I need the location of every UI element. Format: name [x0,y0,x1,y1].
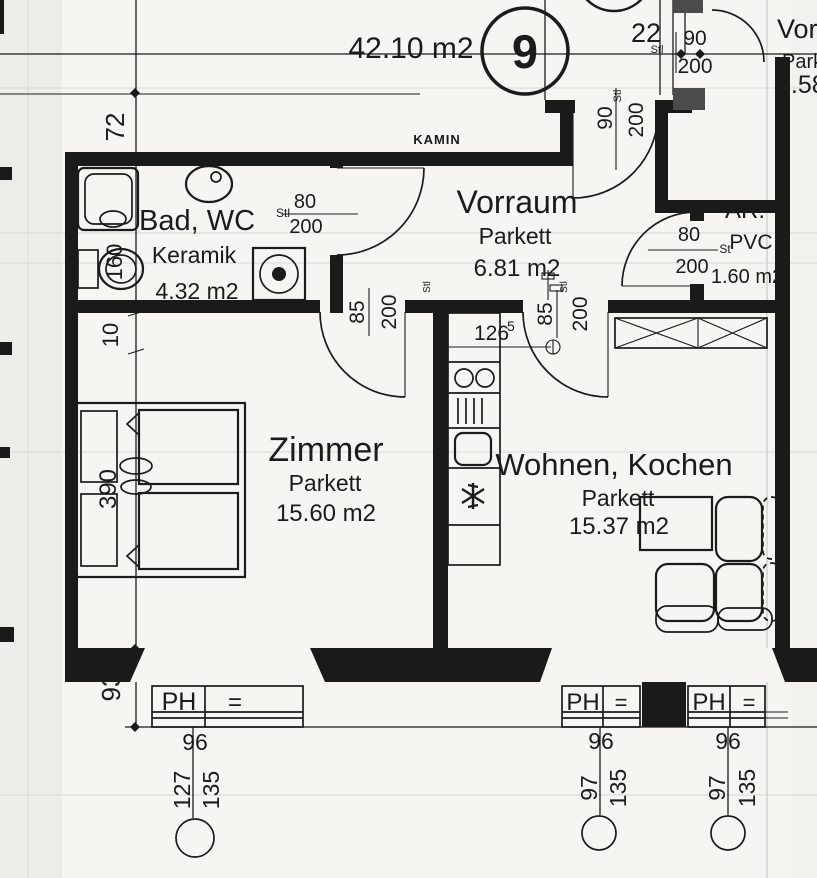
floorplan-svg: 42.10 m2 9 22 Stl 90 200 KAMIN Vorra Par… [0,0,817,878]
door-entrance-width: 90 [594,106,617,129]
window-pier [642,682,686,727]
window1-axis-a: 127 [169,771,195,809]
door-arc-bad [337,168,424,255]
axis-circle-w1 [176,819,214,857]
dim-72: 72 [100,113,130,142]
wall-mid-right [608,300,775,313]
neighbor-room-area: 7.58 [777,71,817,99]
door-ar-width: 80 [678,224,700,246]
door-entrance-frame: Stl [612,90,624,103]
door-entrance-height: 200 [625,102,648,137]
unit-number: 9 [512,25,538,78]
scan-right-margin [792,0,817,878]
window3-axis-a: 97 [704,775,730,801]
door-ar-height: 200 [675,256,708,278]
sink-drain [211,172,221,182]
door-bad-width: 80 [294,191,316,213]
dim-10: 10 [98,323,123,347]
neighbor-door-width: 90 [683,27,706,50]
room-zimmer-name: Zimmer [268,431,383,469]
wall-bad-right-upper [330,152,343,168]
bed-mattress-top [139,410,238,484]
room-vorraum-area: 6.81 m2 [474,255,561,282]
room-wohnen-floor: Parkett [582,485,655,511]
room-ar-floor: PVC [729,231,772,254]
door-frame-label-top: Stl [651,44,664,56]
wall-stub-left1 [0,167,12,180]
axis-circle-w2 [582,816,616,850]
bed-mattress-bottom [139,493,238,569]
dim-390: 390 [95,469,122,509]
door-zimmer-width: 85 [346,300,369,323]
toilet-tank [78,250,98,288]
window-opening-zimmer [130,648,325,682]
door-bad-height: 200 [289,216,322,238]
room-wohnen-area: 15.37 m2 [569,513,669,540]
jamb-neighbor-bottom [673,88,705,110]
dim-160: 160 [102,244,127,281]
door-wohnen-height: 200 [569,296,592,331]
room-bad-name: Bad, WC [139,205,255,237]
wall-bottom-fragment [790,648,817,682]
wardrobe-box [615,318,767,348]
jamb-neighbor-top [673,0,703,13]
corner-sofa [656,497,780,632]
window3-width: 96 [715,728,741,754]
diamond-72-top [130,88,140,98]
axis-circle-w3 [711,816,745,850]
dim-126: 126 [474,322,509,345]
neighbor-circle-fragment [576,0,652,11]
wall-zimmer-wohnen [433,313,448,648]
kamin-label: KAMIN [413,132,461,147]
room-vorraum-floor: Parkett [479,223,552,249]
window1-axis-b: 135 [198,771,224,809]
wall-stub-left2 [0,342,12,355]
dimension-diamonds [130,49,705,732]
wall-bad-right-lower [330,255,343,313]
wall-top [65,152,573,166]
diamond-93-bottom [130,722,140,732]
wardrobe [615,318,767,348]
floorplan-scan: 42.10 m2 9 22 Stl 90 200 KAMIN Vorra Par… [0,0,817,878]
window3-eq-label: = [743,690,756,715]
room-wohnen-name: Wohnen, Kochen [495,447,732,482]
bed-blanket-fold-bottom [127,545,139,567]
fridge-snowflake-icon [462,483,484,509]
neighbor-door-height: 200 [677,55,712,78]
window1-ph-label: PH [162,688,197,716]
wall-ar-jamb-top [690,213,704,221]
room-ar-name: AR. [725,197,765,224]
neighbor-room-floor: Parke [782,51,817,73]
wall-entry-left [545,100,575,113]
wall-mid-center [405,300,523,313]
washing-machine-knob [272,267,286,281]
sofa-seat1 [716,497,762,561]
room-zimmer-floor: Parkett [289,470,362,496]
neighbor-room-name: Vorra [777,14,817,44]
axis-markers-bottom [176,727,745,857]
sofa-seat2 [716,564,762,621]
wall-outer-right [775,57,790,648]
dim-126-sup: 5 [507,318,515,334]
door-ar-frame: St [719,242,731,256]
window2-width: 96 [588,728,614,754]
window2-eq-label: = [615,690,628,715]
sofa-front-edge2 [718,608,772,630]
kitchen-unit [448,313,500,565]
window1-eq-label: = [228,689,242,716]
wall-stub-left3 [0,447,10,458]
door-zimmer-frame: Stl [422,281,433,293]
dim-93: 93 [96,673,126,702]
door-bad-frame: Stl [276,206,290,220]
window3-ph-label: PH [692,689,725,716]
room-zimmer-area: 15.60 m2 [276,500,376,527]
total-area-label: 42.10 m2 [348,32,473,65]
scan-edge-fragment [0,0,4,34]
window2-axis-b: 135 [605,769,631,807]
window3-axis-b: 135 [734,769,760,807]
door-zimmer-height: 200 [378,294,401,329]
door-wohnen-width: 85 [534,302,557,325]
room-bad-area: 4.32 m2 [155,278,238,304]
scan-left-margin [0,0,62,878]
sink [186,166,232,202]
wall-stub-left4 [0,627,14,642]
window2-axis-a: 97 [576,775,602,801]
door-wohnen-frame: Stl [559,281,570,293]
sofa-seat3 [656,564,714,621]
window-opening-wohnen [540,648,785,682]
bed-blanket-fold-top [127,413,139,435]
hob-burner-right [476,369,494,387]
kitchen-sink [455,433,491,465]
window1-width: 96 [182,729,208,755]
hob-burner-left [455,369,473,387]
room-vorraum-name: Vorraum [457,184,578,220]
room-bad-floor: Keramik [152,242,237,268]
window2-ph-label: PH [566,689,599,716]
room-ar-area: 1.60 m2 [711,266,783,288]
